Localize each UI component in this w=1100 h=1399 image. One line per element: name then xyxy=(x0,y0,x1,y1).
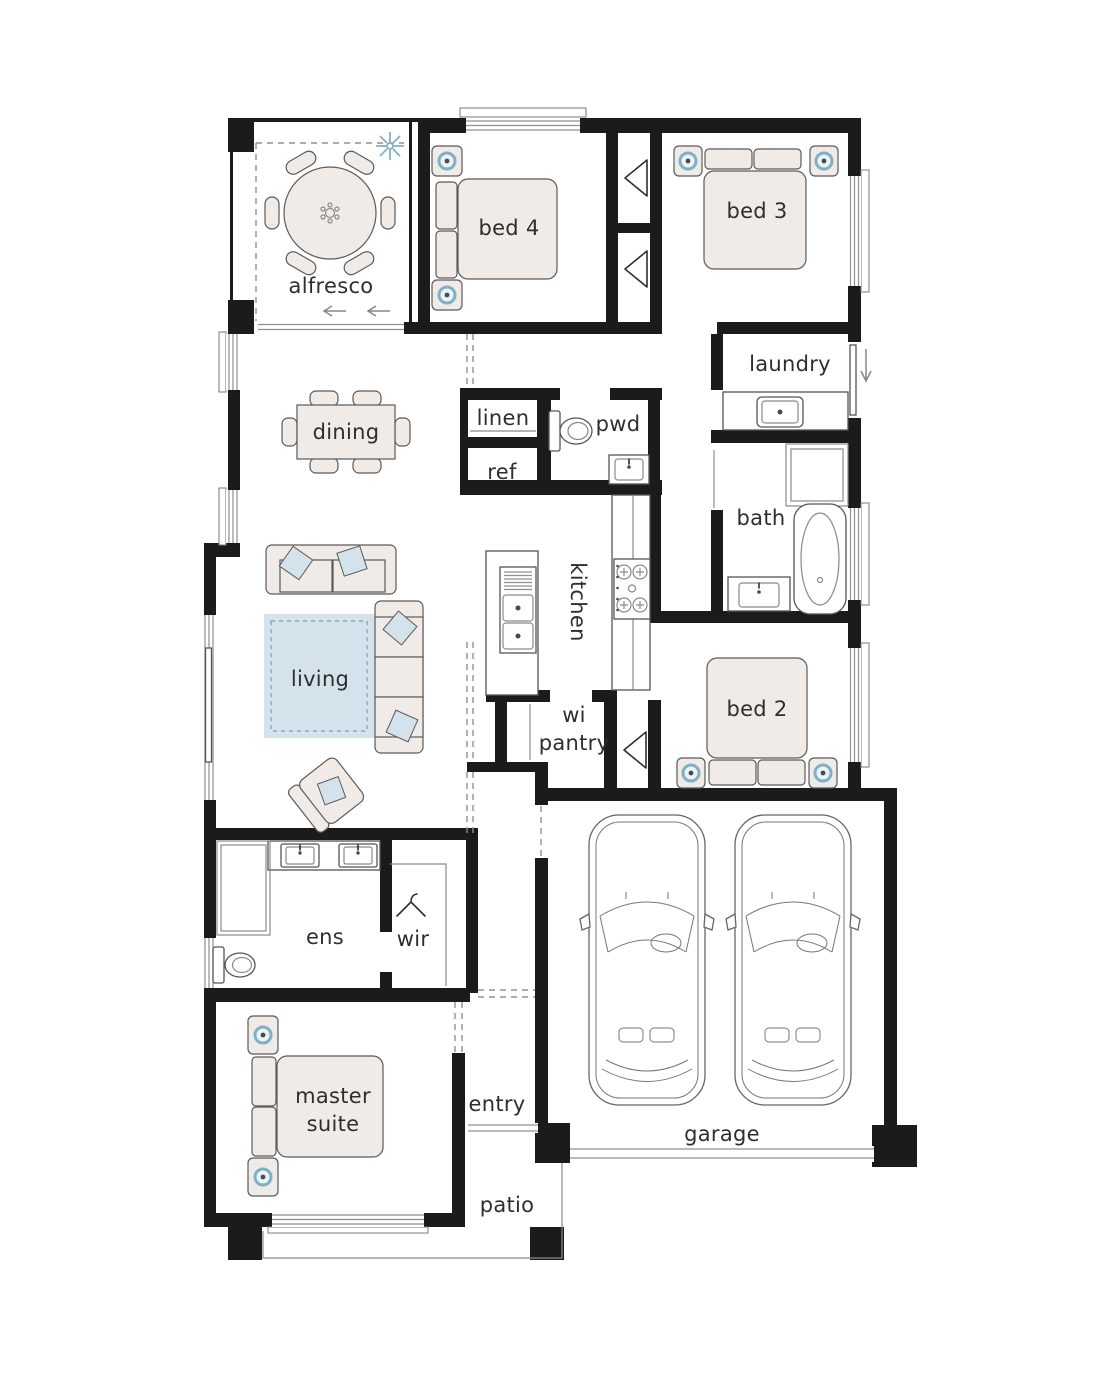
lamp-dot xyxy=(298,851,301,854)
wall-segment xyxy=(547,788,897,801)
lamp-dot xyxy=(616,576,619,579)
wall-segment xyxy=(580,118,662,133)
pillow xyxy=(705,149,752,169)
wall-segment xyxy=(460,388,560,400)
window-sill xyxy=(861,170,869,292)
wall-segment xyxy=(409,118,412,334)
wall-segment xyxy=(204,988,470,1002)
slide-arrow-icon xyxy=(368,306,390,316)
label-patio: patio xyxy=(480,1193,535,1217)
wall-segment xyxy=(204,800,216,938)
window-sill xyxy=(219,488,226,545)
toilet-tank xyxy=(549,411,560,451)
lamp-dot xyxy=(261,1175,266,1180)
use-shape xyxy=(726,815,860,1105)
label-garage: garage xyxy=(684,1122,760,1146)
bulkhead-dashed-line xyxy=(467,642,473,762)
wall-segment xyxy=(848,118,861,176)
bulkhead-dashed-line xyxy=(478,990,535,997)
exit-arrow-icon xyxy=(861,349,871,381)
label-kitchen: kitchen xyxy=(566,562,590,641)
lamp-dot xyxy=(689,771,694,776)
wall-segment xyxy=(650,133,662,334)
label-master-1: master xyxy=(295,1084,371,1108)
furniture xyxy=(381,197,395,229)
pillow xyxy=(709,760,756,785)
label-ens: ens xyxy=(306,925,344,949)
lamp-dot xyxy=(445,293,450,298)
wall-segment xyxy=(380,972,392,988)
wall-segment xyxy=(530,1227,564,1260)
window-sill xyxy=(460,108,586,117)
wall-segment xyxy=(606,133,618,334)
dining-chair xyxy=(282,418,297,446)
furniture xyxy=(375,657,423,697)
wall-segment xyxy=(418,118,430,334)
wall-segment xyxy=(618,322,650,334)
furniture xyxy=(284,167,376,259)
wall-segment xyxy=(848,418,861,508)
g-shape xyxy=(381,197,395,229)
laundry-door-leaf xyxy=(850,345,856,415)
use-shape xyxy=(624,732,646,768)
floor-plan-page: alfresco bed 4 bed 3 laundry linen pwd r… xyxy=(0,0,1100,1399)
dining-chair xyxy=(353,391,381,406)
wall-segment xyxy=(535,1123,570,1163)
label-living: living xyxy=(291,667,349,691)
wall-segment xyxy=(872,1125,917,1167)
wall-segment xyxy=(466,840,478,993)
lamp-dot xyxy=(778,410,783,415)
lamp-dot xyxy=(616,598,619,601)
label-alfresco: alfresco xyxy=(289,274,374,298)
wall-segment xyxy=(230,118,420,122)
label-laundry: laundry xyxy=(749,352,831,376)
armchair xyxy=(287,755,367,834)
lamp-dot xyxy=(686,159,691,164)
wall-segment xyxy=(717,322,860,334)
pillow xyxy=(436,182,457,229)
window-sill xyxy=(219,332,226,392)
wall-segment xyxy=(711,510,723,611)
fixture-outline xyxy=(221,845,266,931)
wall-segment xyxy=(610,388,662,400)
lamp-dot xyxy=(821,771,826,776)
fixture-outline xyxy=(390,864,446,986)
pillow xyxy=(758,760,805,785)
lamp-dot xyxy=(627,465,631,469)
label-pwd: pwd xyxy=(596,412,641,436)
wall-segment xyxy=(592,690,604,702)
toilet-tank xyxy=(213,947,224,983)
bathtub xyxy=(794,504,846,614)
window-sill xyxy=(268,1227,428,1233)
room-garage xyxy=(580,815,860,1105)
label-wi-pantry-2: pantry xyxy=(539,731,610,755)
wall-segment xyxy=(711,334,723,390)
label-master-2: suite xyxy=(307,1112,360,1136)
label-bath: bath xyxy=(737,506,786,530)
wall-segment xyxy=(535,858,548,1123)
pillow xyxy=(252,1107,276,1156)
window-sill xyxy=(861,643,869,767)
ceiling-fan-icon xyxy=(376,132,404,160)
shower xyxy=(217,841,270,935)
wall-segment xyxy=(848,334,861,342)
g-shape xyxy=(265,197,279,229)
wall-segment xyxy=(662,118,860,133)
bulkhead-dashed-line xyxy=(467,772,473,833)
use-shape xyxy=(625,160,647,196)
round-dining-table xyxy=(265,149,395,278)
label-ref: ref xyxy=(487,460,517,484)
wall-segment xyxy=(418,118,466,133)
wall-segment xyxy=(495,702,507,762)
dining-chair xyxy=(310,458,338,473)
wall-segment xyxy=(452,1053,465,1227)
circle-shape xyxy=(387,143,393,149)
label-wir: wir xyxy=(397,927,430,951)
dining-chair xyxy=(353,458,381,473)
sliding-door-panel xyxy=(206,648,212,762)
wall-segment xyxy=(648,400,660,480)
pillow xyxy=(754,149,801,169)
wall-segment xyxy=(618,223,650,233)
wall-segment xyxy=(711,430,861,443)
wall-segment xyxy=(535,762,548,805)
lamp-dot xyxy=(356,851,359,854)
lamp-dot xyxy=(445,159,450,164)
dining-chair xyxy=(310,391,338,406)
label-bed4: bed 4 xyxy=(478,216,539,240)
wall-segment xyxy=(228,390,240,490)
wall-segment xyxy=(230,121,233,302)
lamp-dot xyxy=(822,159,827,164)
label-dining: dining xyxy=(313,420,380,444)
wall-segment xyxy=(204,1213,272,1227)
room-bed2 xyxy=(677,658,837,788)
alfresco-slider xyxy=(258,322,404,334)
label-wi-pantry-1: wi xyxy=(562,703,586,727)
dining-chair xyxy=(395,418,410,446)
bulkhead-dashed-line xyxy=(455,1002,462,1052)
floor-plan: alfresco bed 4 bed 3 laundry linen pwd r… xyxy=(0,0,1100,1399)
lamp-dot xyxy=(616,587,619,590)
label-entry: entry xyxy=(468,1092,525,1116)
label-bed2: bed 2 xyxy=(726,697,787,721)
wall-segment xyxy=(404,322,606,334)
slide-arrow-icon xyxy=(324,306,346,316)
lamp-dot xyxy=(261,1033,266,1038)
wall-segment xyxy=(884,795,897,1125)
bath-vanity xyxy=(728,577,790,611)
shower xyxy=(786,444,848,506)
room-ens xyxy=(213,841,380,983)
lamp-dot xyxy=(616,565,619,568)
pillow xyxy=(252,1057,276,1106)
wall-segment xyxy=(204,557,216,615)
wall-segment xyxy=(228,1227,262,1260)
furniture xyxy=(265,197,279,229)
toilet-bowl xyxy=(560,418,592,444)
wall-segment xyxy=(424,1213,452,1227)
wall-segment xyxy=(848,600,861,648)
lamp-dot xyxy=(516,606,521,611)
wall-segment xyxy=(204,988,216,1213)
use-shape xyxy=(625,251,647,287)
label-linen: linen xyxy=(477,406,530,430)
fixture-outline xyxy=(791,449,843,501)
toilet-bowl xyxy=(225,953,255,977)
label-bed3: bed 3 xyxy=(726,199,787,223)
use-shape xyxy=(580,815,714,1105)
coat-hanger-icon xyxy=(397,894,425,916)
window-sill xyxy=(861,503,869,605)
lamp-dot xyxy=(516,634,521,639)
wall-segment xyxy=(460,437,538,448)
lamp-dot xyxy=(757,590,761,594)
bulkhead-dashed-line xyxy=(467,334,473,388)
wall-segment xyxy=(204,828,478,840)
pillow xyxy=(436,231,457,278)
wall-segment xyxy=(228,300,254,334)
wall-segment xyxy=(648,700,661,801)
wall-segment xyxy=(380,840,392,932)
lamp-dot xyxy=(616,609,619,612)
room-wir xyxy=(397,894,425,916)
